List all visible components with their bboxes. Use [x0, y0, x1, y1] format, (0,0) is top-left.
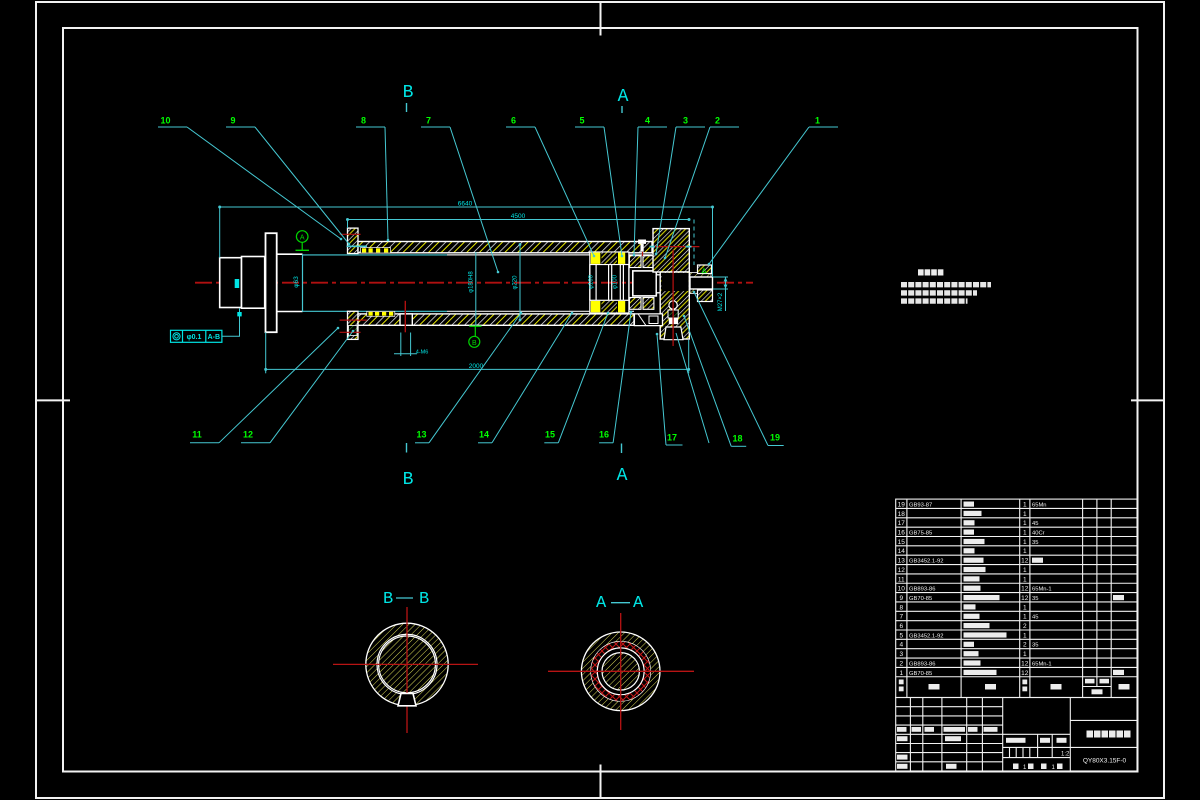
svg-text:16: 16 — [599, 430, 609, 440]
svg-text:φ0.1: φ0.1 — [187, 334, 202, 341]
svg-text:φ63: φ63 — [293, 276, 300, 288]
svg-text:4-M6: 4-M6 — [416, 350, 429, 356]
svg-text:19: 19 — [770, 433, 780, 443]
svg-text:1: 1 — [1023, 530, 1027, 537]
svg-text:5: 5 — [899, 632, 903, 639]
svg-text:1: 1 — [1023, 614, 1027, 621]
svg-text:1: 1 — [1023, 604, 1027, 611]
svg-text:1: 1 — [1023, 632, 1027, 639]
svg-text:65Mn: 65Mn — [1032, 503, 1047, 509]
svg-text:12: 12 — [1021, 670, 1029, 677]
svg-text:7: 7 — [899, 614, 903, 621]
svg-text:7: 7 — [426, 116, 431, 126]
svg-text:A-B: A-B — [208, 334, 220, 341]
svg-text:4: 4 — [899, 642, 903, 649]
svg-text:GB3452.1-92: GB3452.1-92 — [909, 633, 943, 639]
svg-text:2: 2 — [1023, 642, 1027, 649]
svg-text:B: B — [403, 470, 414, 490]
svg-text:35: 35 — [1032, 540, 1038, 546]
svg-text:1: 1 — [1023, 520, 1027, 527]
svg-text:GB893-86: GB893-86 — [909, 587, 935, 593]
svg-text:12: 12 — [1021, 660, 1029, 667]
svg-text:B: B — [383, 590, 393, 609]
svg-text:6: 6 — [511, 116, 516, 126]
svg-text:A: A — [596, 594, 607, 613]
svg-text:5: 5 — [579, 116, 584, 126]
svg-text:φ100: φ100 — [589, 274, 595, 289]
svg-text:6: 6 — [899, 623, 903, 630]
svg-text:1: 1 — [1023, 548, 1027, 555]
svg-text:1: 1 — [899, 670, 903, 677]
svg-text:14: 14 — [898, 548, 906, 555]
svg-text:φ220: φ220 — [513, 275, 519, 290]
svg-text:1: 1 — [1023, 511, 1027, 518]
svg-text:1: 1 — [1023, 651, 1027, 658]
svg-text:8: 8 — [361, 116, 366, 126]
svg-text:M27×2: M27×2 — [718, 292, 724, 311]
svg-text:3: 3 — [899, 651, 903, 658]
svg-text:GB93-87: GB93-87 — [909, 503, 932, 509]
svg-text:9: 9 — [899, 595, 903, 602]
svg-text:1: 1 — [815, 116, 820, 126]
svg-text:12: 12 — [1021, 558, 1029, 565]
svg-text:19: 19 — [898, 502, 906, 509]
svg-text:65Mn-1: 65Mn-1 — [1032, 587, 1052, 593]
svg-text:45: 45 — [1032, 615, 1038, 621]
svg-text:φ180H8: φ180H8 — [469, 271, 475, 293]
svg-text:A: A — [300, 235, 305, 242]
svg-text:18: 18 — [732, 434, 742, 444]
svg-text:8: 8 — [899, 604, 903, 611]
svg-text:1: 1 — [1023, 567, 1027, 574]
svg-text:4: 4 — [645, 116, 650, 126]
svg-text:10: 10 — [898, 586, 906, 593]
svg-text:13: 13 — [416, 430, 426, 440]
svg-text:12: 12 — [898, 567, 906, 574]
svg-text:GB75-85: GB75-85 — [909, 531, 932, 537]
svg-text:1: 1 — [1023, 502, 1027, 509]
svg-text:18: 18 — [898, 511, 906, 518]
svg-text:GB70-85: GB70-85 — [909, 596, 932, 602]
svg-text:35: 35 — [1032, 596, 1038, 602]
svg-text:GB893-86: GB893-86 — [909, 661, 935, 667]
svg-text:B: B — [403, 83, 414, 103]
svg-text:17: 17 — [898, 520, 906, 527]
svg-text:40Cr: 40Cr — [1032, 531, 1045, 537]
svg-text:16: 16 — [898, 530, 906, 537]
svg-text:13: 13 — [898, 558, 906, 565]
svg-text:14: 14 — [479, 430, 489, 440]
svg-text:QY80X3.15F-0: QY80X3.15F-0 — [1083, 758, 1127, 765]
svg-text:2: 2 — [1023, 623, 1027, 630]
svg-text:A: A — [633, 594, 644, 613]
svg-text:12: 12 — [1021, 586, 1029, 593]
svg-text:12: 12 — [1021, 595, 1029, 602]
svg-text:6640: 6640 — [458, 201, 473, 208]
svg-text:9: 9 — [230, 116, 235, 126]
svg-text:10: 10 — [160, 116, 170, 126]
svg-text:B: B — [419, 590, 429, 609]
svg-text:A: A — [617, 466, 628, 486]
svg-text:11: 11 — [192, 430, 202, 440]
svg-text:1:2: 1:2 — [1061, 752, 1070, 758]
svg-text:4500: 4500 — [511, 213, 526, 220]
svg-text:A: A — [618, 87, 629, 107]
svg-text:15: 15 — [898, 539, 906, 546]
svg-text:1: 1 — [1023, 576, 1027, 583]
svg-text:65Mn-1: 65Mn-1 — [1032, 661, 1052, 667]
svg-text:15: 15 — [545, 430, 555, 440]
svg-text:45: 45 — [1032, 521, 1038, 527]
svg-text:B: B — [472, 340, 477, 347]
svg-text:φ100: φ100 — [613, 274, 619, 289]
svg-text:17: 17 — [667, 433, 677, 443]
svg-text:2: 2 — [715, 116, 720, 126]
svg-text:GB3452.1-92: GB3452.1-92 — [909, 559, 943, 565]
svg-text:12: 12 — [243, 430, 253, 440]
svg-text:11: 11 — [898, 576, 905, 583]
svg-text:3: 3 — [683, 116, 688, 126]
svg-text:GB70-85: GB70-85 — [909, 671, 932, 677]
svg-text:2: 2 — [899, 660, 903, 667]
svg-text:35: 35 — [1032, 643, 1038, 649]
svg-text:1: 1 — [1023, 539, 1027, 546]
